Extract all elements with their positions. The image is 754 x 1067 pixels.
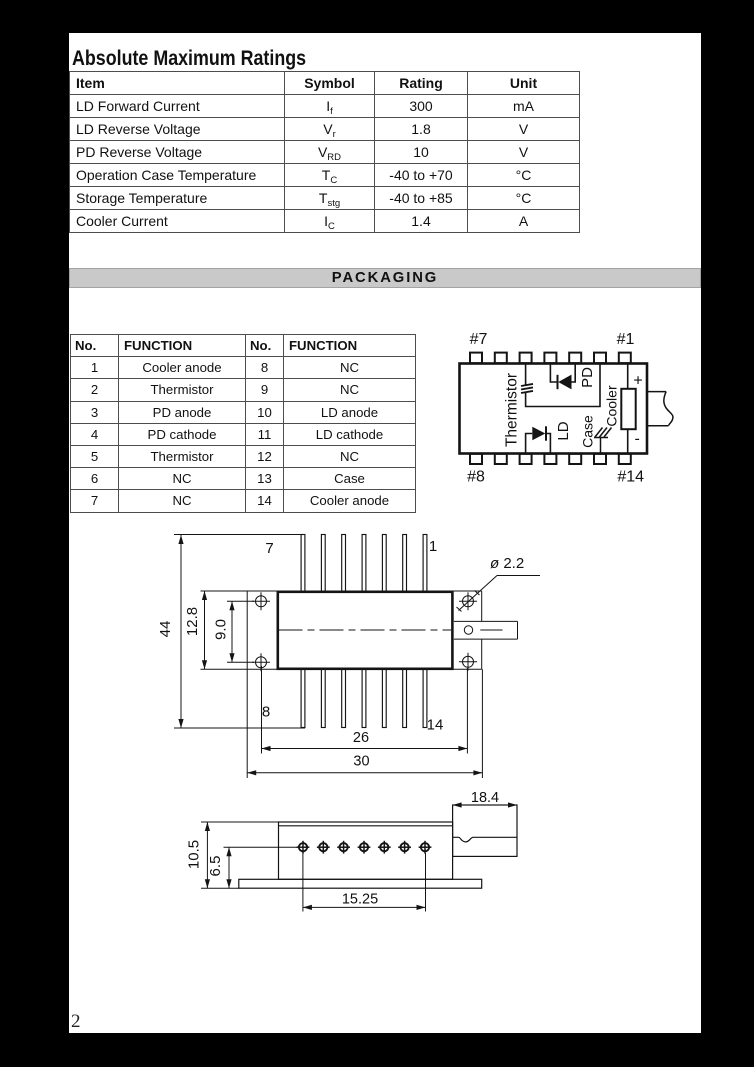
- svg-text:1: 1: [429, 538, 437, 555]
- svg-text:+: +: [633, 373, 642, 390]
- svg-text:10.5: 10.5: [186, 840, 203, 869]
- svg-text:#1: #1: [617, 331, 635, 348]
- svg-text:30: 30: [353, 754, 369, 770]
- svg-text:-: -: [635, 431, 640, 448]
- svg-text:26: 26: [353, 730, 369, 746]
- svg-text:ø 2.2: ø 2.2: [490, 555, 524, 572]
- svg-text:6.5: 6.5: [207, 856, 224, 877]
- svg-text:PD: PD: [579, 367, 596, 388]
- svg-text:LD: LD: [555, 421, 572, 440]
- svg-text:7: 7: [265, 540, 273, 557]
- svg-text:#14: #14: [617, 469, 644, 486]
- svg-text:44: 44: [157, 621, 174, 638]
- svg-text:8: 8: [262, 704, 270, 721]
- svg-text:18.4: 18.4: [471, 790, 499, 806]
- svg-text:Cooler: Cooler: [604, 385, 620, 427]
- svg-text:Case: Case: [580, 415, 596, 448]
- svg-text:12.8: 12.8: [184, 607, 201, 636]
- svg-text:#8: #8: [467, 469, 485, 486]
- svg-text:14: 14: [427, 717, 444, 734]
- svg-text:#7: #7: [470, 331, 488, 348]
- svg-text:15.25: 15.25: [342, 892, 378, 908]
- svg-text:Thermistor: Thermistor: [504, 373, 521, 447]
- svg-text:9.0: 9.0: [213, 619, 230, 640]
